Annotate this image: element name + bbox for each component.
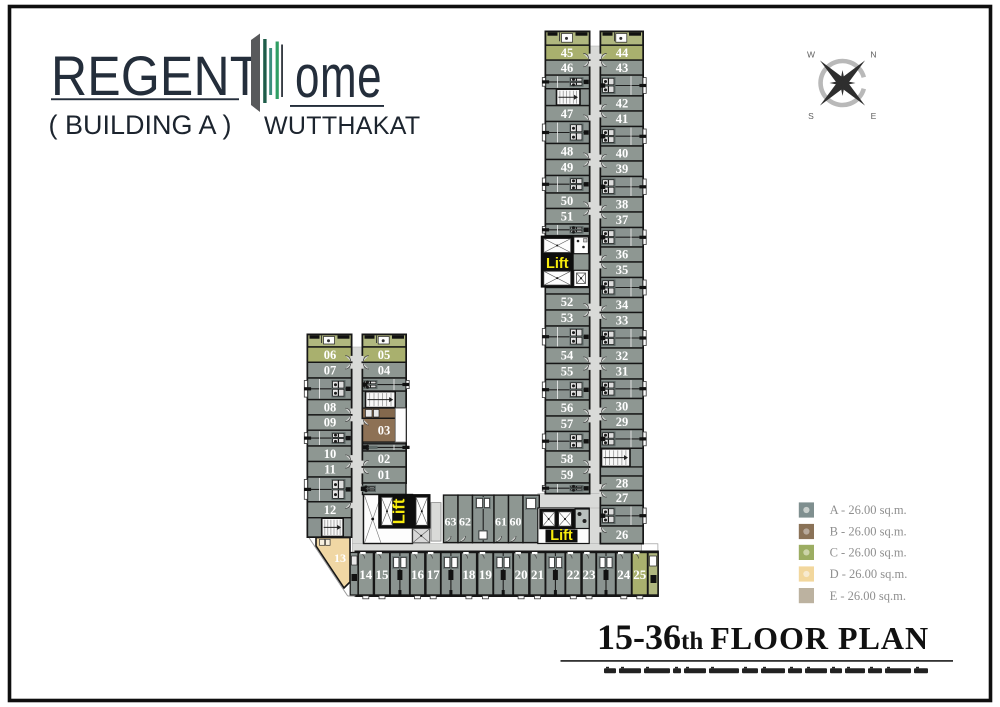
svg-text:52: 52 bbox=[561, 295, 574, 309]
svg-text:18: 18 bbox=[462, 567, 476, 582]
svg-text:03: 03 bbox=[378, 423, 391, 437]
svg-text:01: 01 bbox=[378, 468, 391, 482]
svg-text:15: 15 bbox=[376, 567, 390, 582]
svg-text:A - 26.00 sq.m.: A - 26.00 sq.m. bbox=[830, 503, 907, 517]
svg-text:32: 32 bbox=[616, 349, 629, 363]
svg-text:59: 59 bbox=[561, 468, 574, 482]
svg-text:24: 24 bbox=[617, 567, 631, 582]
svg-text:42: 42 bbox=[616, 97, 629, 111]
svg-text:11: 11 bbox=[324, 462, 336, 476]
svg-text:54: 54 bbox=[561, 349, 574, 363]
svg-text:35: 35 bbox=[616, 263, 629, 277]
svg-text:D - 26.00 sq.m.: D - 26.00 sq.m. bbox=[830, 567, 908, 581]
svg-text:09: 09 bbox=[324, 416, 337, 430]
svg-text:48: 48 bbox=[561, 145, 574, 159]
svg-text:58: 58 bbox=[561, 452, 574, 466]
svg-text:S: S bbox=[808, 111, 814, 121]
svg-text:04: 04 bbox=[378, 363, 391, 377]
svg-text:14: 14 bbox=[359, 567, 373, 582]
svg-text:49: 49 bbox=[561, 161, 574, 175]
svg-text:C - 26.00 sq.m.: C - 26.00 sq.m. bbox=[830, 546, 907, 560]
svg-text:( BUILDING A ): ( BUILDING A ) bbox=[49, 110, 232, 140]
svg-text:17: 17 bbox=[427, 567, 441, 582]
svg-text:33: 33 bbox=[616, 313, 629, 327]
svg-text:34: 34 bbox=[616, 298, 629, 312]
svg-text:26: 26 bbox=[616, 528, 629, 542]
svg-text:28: 28 bbox=[616, 476, 629, 490]
svg-text:56: 56 bbox=[561, 401, 574, 415]
svg-text:45: 45 bbox=[561, 46, 574, 60]
svg-text:Lift: Lift bbox=[550, 528, 573, 544]
svg-text:15-36thFLOOR PLAN: 15-36thFLOOR PLAN bbox=[597, 617, 929, 657]
svg-text:53: 53 bbox=[561, 311, 574, 325]
svg-text:27: 27 bbox=[616, 491, 629, 505]
svg-text:12: 12 bbox=[324, 503, 337, 517]
svg-text:WUTTHAKAT: WUTTHAKAT bbox=[264, 112, 420, 140]
svg-text:41: 41 bbox=[616, 112, 629, 126]
svg-text:22: 22 bbox=[567, 567, 580, 582]
svg-text:62: 62 bbox=[459, 515, 471, 529]
svg-text:43: 43 bbox=[616, 61, 629, 75]
svg-text:Lift: Lift bbox=[546, 256, 569, 272]
svg-text:10: 10 bbox=[324, 447, 337, 461]
svg-text:07: 07 bbox=[324, 363, 337, 377]
svg-text:30: 30 bbox=[616, 399, 629, 413]
svg-text:13: 13 bbox=[334, 551, 346, 565]
svg-text:E: E bbox=[871, 111, 877, 121]
svg-text:16: 16 bbox=[411, 567, 425, 582]
svg-text:38: 38 bbox=[616, 198, 629, 212]
svg-text:36: 36 bbox=[616, 248, 629, 262]
svg-text:51: 51 bbox=[561, 209, 574, 223]
svg-text:23: 23 bbox=[583, 567, 597, 582]
svg-text:06: 06 bbox=[324, 348, 337, 362]
svg-text:61: 61 bbox=[495, 515, 507, 529]
svg-text:50: 50 bbox=[561, 194, 574, 208]
svg-text:ome: ome bbox=[295, 43, 382, 111]
svg-text:B - 26.00 sq.m.: B - 26.00 sq.m. bbox=[830, 525, 907, 539]
svg-text:47: 47 bbox=[561, 107, 574, 121]
svg-text:19: 19 bbox=[479, 567, 493, 582]
svg-text:02: 02 bbox=[378, 452, 391, 466]
svg-text:44: 44 bbox=[616, 46, 629, 60]
svg-text:40: 40 bbox=[616, 147, 629, 161]
svg-text:57: 57 bbox=[561, 417, 574, 431]
svg-text:63: 63 bbox=[445, 515, 457, 529]
svg-text:N: N bbox=[870, 50, 876, 60]
svg-text:46: 46 bbox=[561, 61, 574, 75]
svg-text:29: 29 bbox=[616, 415, 629, 429]
svg-text:21: 21 bbox=[531, 567, 544, 582]
svg-text:08: 08 bbox=[324, 400, 337, 414]
svg-text:25: 25 bbox=[633, 567, 647, 582]
svg-text:05: 05 bbox=[378, 348, 391, 362]
svg-text:W: W bbox=[807, 50, 815, 60]
svg-text:Lift: Lift bbox=[390, 498, 408, 524]
svg-text:20: 20 bbox=[515, 567, 528, 582]
svg-text:39: 39 bbox=[616, 162, 629, 176]
svg-text:E - 26.00 sq.m.: E - 26.00 sq.m. bbox=[830, 589, 906, 603]
svg-text:37: 37 bbox=[616, 213, 629, 227]
svg-text:55: 55 bbox=[561, 365, 574, 379]
svg-text:60: 60 bbox=[510, 515, 522, 529]
svg-text:31: 31 bbox=[616, 364, 629, 378]
